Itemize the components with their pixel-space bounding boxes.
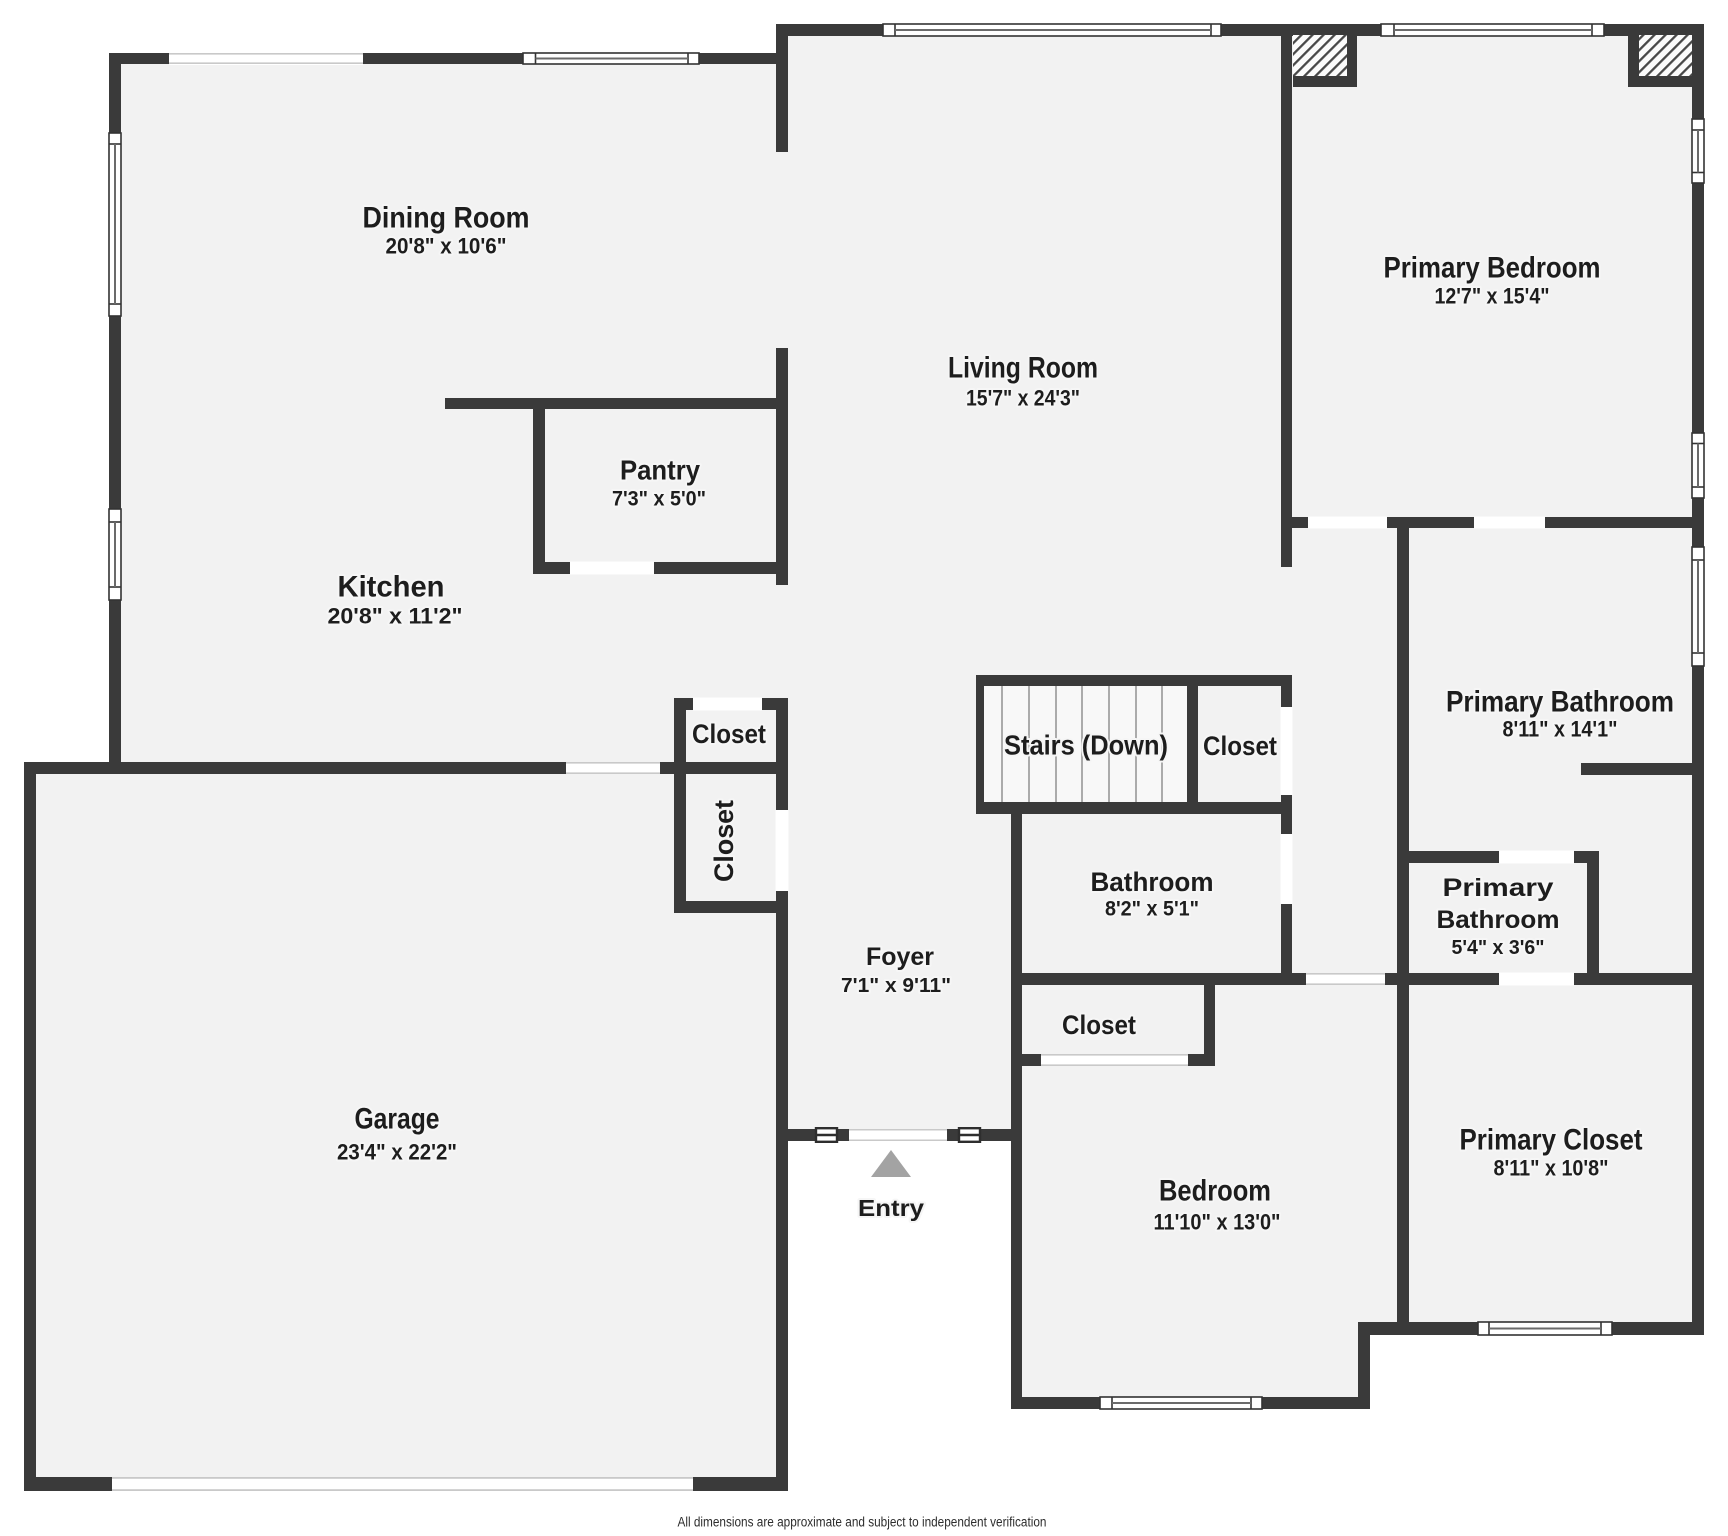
svg-text:Entry: Entry xyxy=(858,1195,924,1221)
svg-text:Bathroom: Bathroom xyxy=(1437,906,1560,934)
svg-text:15'7" x 24'3": 15'7" x 24'3" xyxy=(966,386,1080,411)
svg-text:8'11" x 14'1": 8'11" x 14'1" xyxy=(1503,717,1618,742)
svg-text:20'8" x 11'2": 20'8" x 11'2" xyxy=(328,604,463,629)
svg-text:Closet: Closet xyxy=(709,800,739,882)
svg-text:7'1" x 9'11": 7'1" x 9'11" xyxy=(841,975,951,997)
svg-text:Primary Closet: Primary Closet xyxy=(1460,1124,1643,1157)
svg-text:Closet: Closet xyxy=(692,719,766,749)
svg-text:Bedroom: Bedroom xyxy=(1159,1175,1271,1208)
svg-text:23'4" x 22'2": 23'4" x 22'2" xyxy=(337,1140,457,1165)
svg-text:12'7" x 15'4": 12'7" x 15'4" xyxy=(1435,284,1550,309)
svg-text:Pantry: Pantry xyxy=(620,455,700,486)
svg-text:Primary Bathroom: Primary Bathroom xyxy=(1446,686,1674,719)
svg-text:Primary: Primary xyxy=(1443,874,1554,902)
svg-text:Foyer: Foyer xyxy=(866,943,934,971)
svg-text:5'4" x 3'6": 5'4" x 3'6" xyxy=(1452,937,1545,959)
svg-text:Closet: Closet xyxy=(1203,731,1277,761)
svg-text:8'11" x 10'8": 8'11" x 10'8" xyxy=(1494,1156,1609,1181)
svg-text:All dimensions are approximate: All dimensions are approximate and subje… xyxy=(678,1515,1047,1530)
svg-text:Primary Bedroom: Primary Bedroom xyxy=(1384,252,1601,285)
svg-text:8'2" x 5'1": 8'2" x 5'1" xyxy=(1105,898,1199,921)
svg-text:Closet: Closet xyxy=(1062,1010,1136,1040)
svg-text:Garage: Garage xyxy=(355,1103,440,1136)
svg-text:11'10" x 13'0": 11'10" x 13'0" xyxy=(1154,1210,1281,1235)
svg-text:Kitchen: Kitchen xyxy=(338,571,445,604)
svg-text:Living Room: Living Room xyxy=(948,352,1098,385)
svg-text:Stairs (Down): Stairs (Down) xyxy=(1004,730,1168,761)
svg-text:20'8" x 10'6": 20'8" x 10'6" xyxy=(386,234,507,259)
svg-text:Dining Room: Dining Room xyxy=(363,202,530,235)
svg-text:Bathroom: Bathroom xyxy=(1091,867,1214,897)
svg-text:7'3" x 5'0": 7'3" x 5'0" xyxy=(612,488,706,511)
